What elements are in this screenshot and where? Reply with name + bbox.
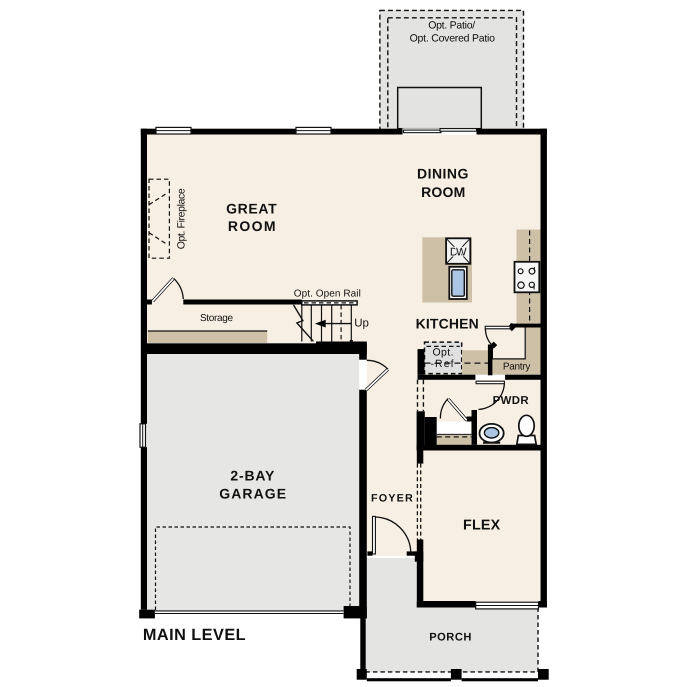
- svg-text:Opt. Open Rail: Opt. Open Rail: [294, 289, 361, 300]
- svg-text:FOYER: FOYER: [371, 493, 413, 505]
- svg-text:DINING: DINING: [417, 165, 468, 181]
- svg-text:FLEX: FLEX: [463, 518, 501, 534]
- svg-text:PORCH: PORCH: [429, 632, 471, 644]
- svg-text:Opt.: Opt.: [433, 347, 454, 359]
- svg-text:GARAGE: GARAGE: [219, 485, 286, 501]
- svg-text:ROOM: ROOM: [228, 218, 276, 234]
- svg-text:MAIN LEVEL: MAIN LEVEL: [143, 626, 246, 644]
- svg-text:Up: Up: [354, 318, 369, 330]
- svg-text:Storage: Storage: [200, 313, 234, 324]
- svg-text:KITCHEN: KITCHEN: [416, 316, 479, 332]
- svg-text:Opt. Covered Patio: Opt. Covered Patio: [410, 32, 496, 44]
- svg-text:-Ref: -Ref: [431, 358, 454, 370]
- svg-text:PWDR: PWDR: [493, 395, 529, 407]
- svg-text:Opt. Patio/: Opt. Patio/: [428, 20, 475, 32]
- svg-text:2-BAY: 2-BAY: [230, 467, 275, 483]
- svg-text:Opt. Fireplace: Opt. Fireplace: [176, 188, 188, 249]
- svg-text:ROOM: ROOM: [421, 184, 465, 200]
- svg-text:DW: DW: [450, 247, 467, 259]
- svg-text:GREAT: GREAT: [226, 201, 277, 217]
- svg-text:Pantry: Pantry: [503, 361, 531, 372]
